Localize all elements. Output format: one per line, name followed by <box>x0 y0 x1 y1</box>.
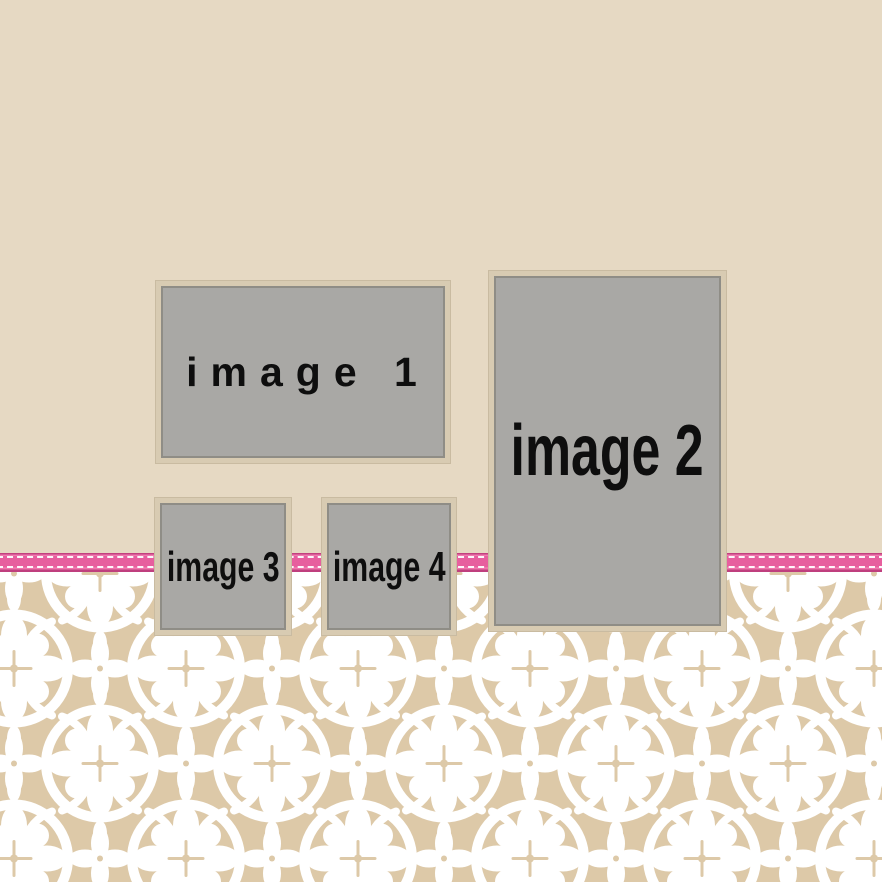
placeholder-2-label: image 2 <box>511 415 704 487</box>
image-placeholder-2[interactable]: image 2 <box>494 276 721 626</box>
image-placeholder-1[interactable]: image 1 <box>161 286 445 458</box>
placeholder-3-label: image 3 <box>167 546 280 588</box>
scrapbook-page: image 1 image 2 image 3 image 4 <box>0 0 882 882</box>
placeholder-1-label: image 1 <box>186 352 430 393</box>
placeholder-4-label: image 4 <box>333 546 446 588</box>
image-placeholder-3[interactable]: image 3 <box>160 503 286 630</box>
image-placeholder-4[interactable]: image 4 <box>327 503 451 630</box>
